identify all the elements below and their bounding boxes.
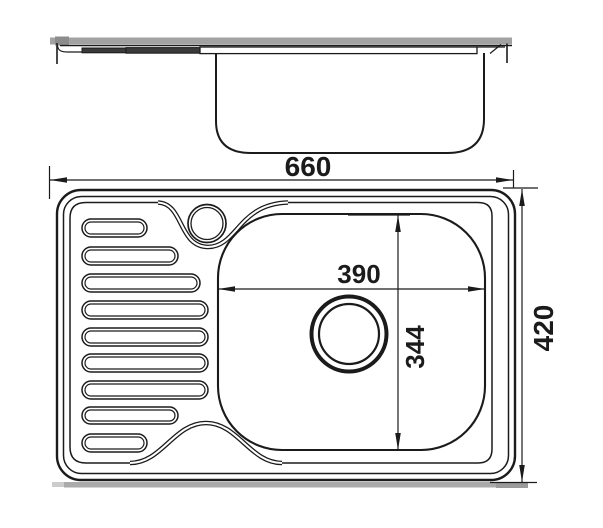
drainboard-slot [82, 434, 147, 452]
drawing-canvas: 660 420 390 344 [0, 0, 603, 528]
arrow-left [50, 177, 67, 183]
arrow-down [395, 433, 401, 450]
bottom-shadow [64, 482, 528, 488]
counter-band [50, 38, 512, 45]
dimension-label-bowl-width: 390 [337, 259, 380, 289]
shadow-light-cap [52, 482, 66, 487]
arrow-up [395, 215, 401, 232]
arrow-right [468, 286, 485, 292]
drainboard-slot [82, 407, 178, 424]
left-rim-profile [58, 46, 85, 53]
faucet-hole [188, 205, 226, 243]
drainboard-slot [82, 301, 208, 319]
drainboard-slot [82, 219, 147, 237]
bowl-profile [216, 53, 484, 153]
sink-technical-drawing: 660 420 390 344 [0, 0, 603, 528]
rim-profile-section [200, 47, 477, 54]
drainboard-slot [82, 381, 208, 399]
bowl-outline [218, 214, 485, 450]
sink-top-view [52, 190, 528, 488]
arrow-left [218, 286, 235, 292]
sink-side-view [50, 37, 512, 154]
drainboard-slot [82, 354, 208, 372]
arrow-right [496, 177, 513, 183]
drain-hole [312, 297, 387, 372]
divider-bump-wave [130, 423, 282, 463]
arrow-up [519, 189, 525, 206]
arrow-down [519, 465, 525, 482]
sink-inner-rim [64, 197, 509, 474]
slot-profile-strip-2 [126, 48, 202, 54]
drainboard-slot [82, 328, 208, 346]
dimension-bowl-depth: 344 [348, 215, 430, 450]
dimension-label-overall-depth: 420 [528, 305, 559, 352]
drainboard-slots [82, 219, 208, 452]
dimension-overall-depth: 420 [490, 188, 559, 483]
dimension-label-bowl-depth: 344 [400, 325, 430, 369]
dimension-overall-width: 660 [50, 151, 514, 199]
drainboard-slot [82, 274, 200, 292]
dimension-label-overall-width: 660 [285, 151, 332, 182]
dimension-bowl-width: 390 [218, 259, 485, 292]
drainboard-slot [82, 247, 178, 265]
